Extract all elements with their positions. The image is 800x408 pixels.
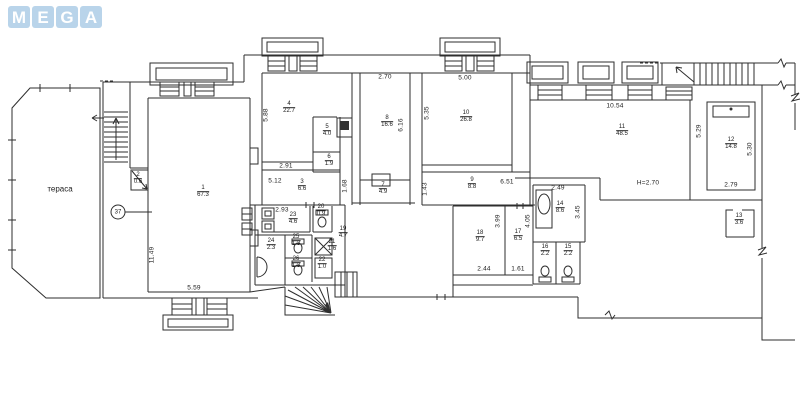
rooms-7-8-9-10-walls: [352, 73, 535, 205]
terrace-outline: [8, 84, 100, 298]
floor-plan: 167.320.636.6422.754.061.974.9816.698.81…: [0, 0, 800, 408]
rooms-3-4-5-6-walls: [262, 73, 530, 205]
rooms-14-18-walls: [453, 185, 585, 297]
floor-plan-page: MEGA: [0, 0, 800, 408]
rooms-12-13-walls: [707, 102, 755, 237]
room11-walls: [515, 85, 762, 205]
position-marker-37: 37: [111, 205, 126, 220]
sanitary-cluster-walls: [250, 202, 345, 285]
room1-walls: [125, 98, 258, 292]
